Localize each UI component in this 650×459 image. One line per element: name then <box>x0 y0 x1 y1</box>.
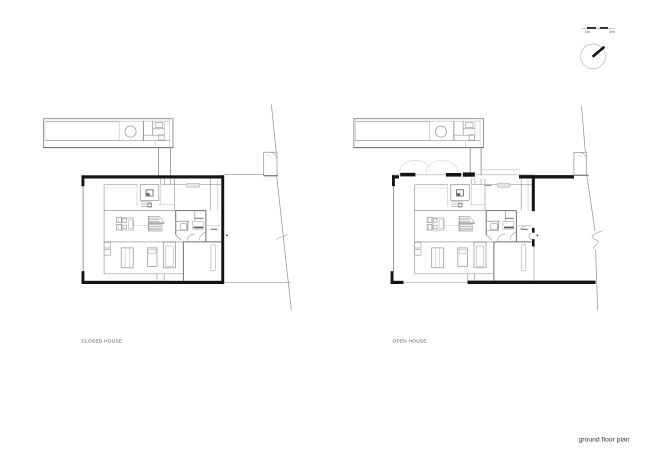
svg-text:2m: 2m <box>609 29 615 34</box>
svg-text:1m: 1m <box>585 29 591 34</box>
svg-text:ground floor plan: ground floor plan <box>579 436 630 443</box>
svg-text:OPEN HOUSE: OPEN HOUSE <box>393 338 427 343</box>
svg-text:CLOSED HOUSE: CLOSED HOUSE <box>82 338 123 343</box>
